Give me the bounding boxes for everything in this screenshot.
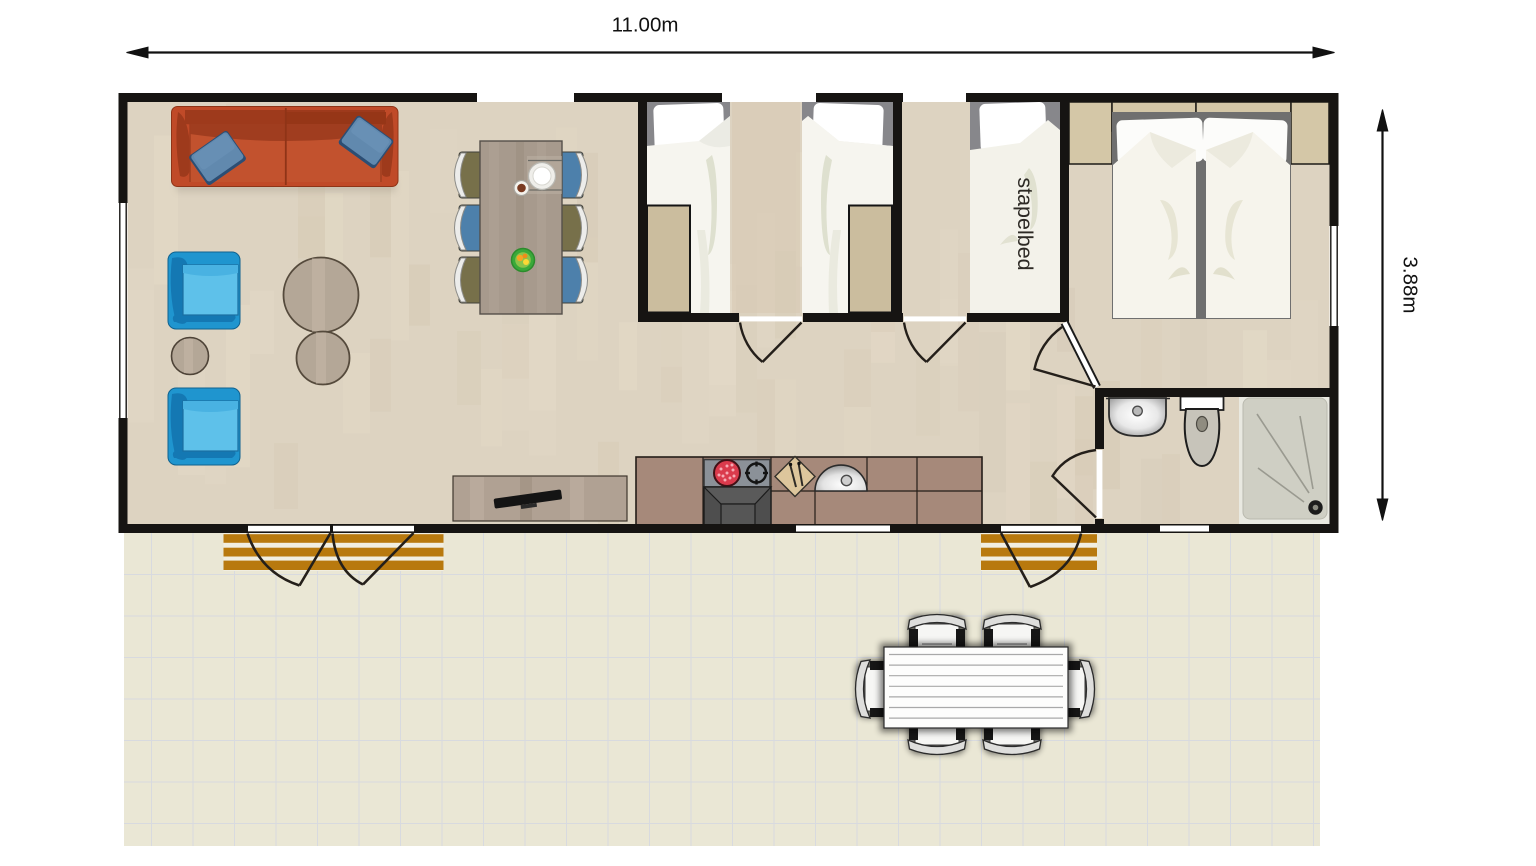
- svg-text:11.00m: 11.00m: [612, 14, 679, 37]
- svg-text:stapelbed: stapelbed: [1013, 177, 1037, 270]
- svg-text:3.88m: 3.88m: [1399, 257, 1422, 314]
